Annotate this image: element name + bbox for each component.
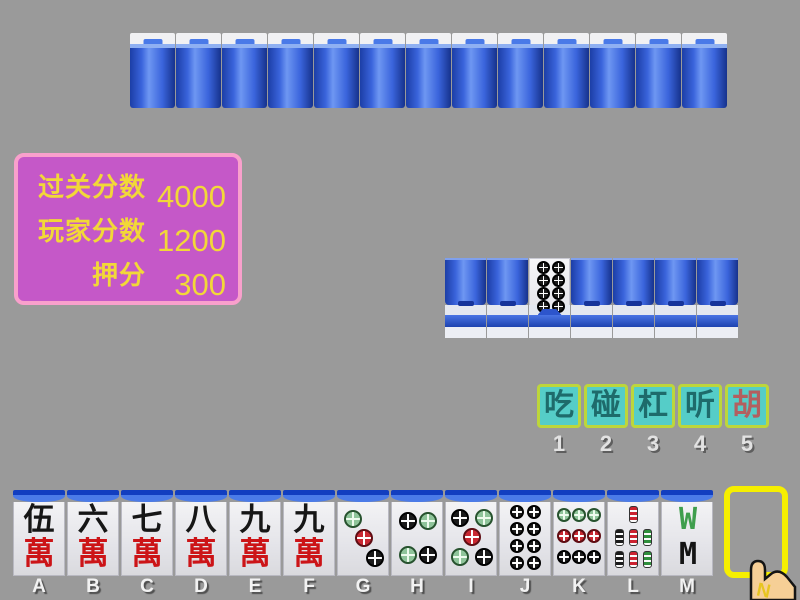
hand-cursor-icon: N bbox=[736, 558, 798, 600]
bamboo-stick bbox=[643, 551, 652, 568]
opponent-tile-back bbox=[498, 33, 543, 108]
opponent-tile-back bbox=[452, 33, 497, 108]
tile-face-dots-8 bbox=[529, 258, 570, 305]
tile-char-top: 九 bbox=[230, 503, 280, 537]
opponent-tile-back bbox=[222, 33, 267, 108]
tile-back bbox=[452, 48, 497, 108]
hand-tile-label: B bbox=[86, 576, 100, 598]
dot-pip bbox=[366, 549, 384, 567]
opponent-tile-back bbox=[406, 33, 451, 108]
dot-pip bbox=[475, 548, 493, 566]
dot-pip bbox=[587, 529, 601, 543]
score-row: 押分 300 bbox=[18, 255, 238, 299]
dot-pip bbox=[587, 508, 601, 522]
hand-slot-d: 八萬D bbox=[175, 490, 227, 598]
tile-char-top: 六 bbox=[68, 503, 118, 537]
tile-face-bamboo-8: WM bbox=[661, 502, 713, 576]
dot-pip bbox=[344, 510, 362, 528]
tile-back bbox=[268, 48, 313, 108]
tile-edge bbox=[613, 327, 654, 338]
tile-top-edge bbox=[268, 33, 313, 44]
tile-edge-blue bbox=[571, 315, 612, 327]
tile-face-wan-8: 八萬 bbox=[175, 502, 227, 576]
hand-tile-label: L bbox=[627, 576, 639, 598]
tile-top-edge bbox=[360, 33, 405, 44]
hand-tile-d[interactable]: 八萬 bbox=[175, 490, 227, 576]
opponent-tile-back bbox=[176, 33, 221, 108]
hand-tile-a[interactable]: 伍萬 bbox=[13, 490, 65, 576]
hand-slot-i: I bbox=[445, 490, 497, 598]
tile-char-top: 八 bbox=[176, 503, 226, 537]
meld-tile-back bbox=[571, 258, 612, 338]
player-score-label: 玩家分数 bbox=[18, 211, 146, 255]
tile-top-edge-light bbox=[121, 495, 173, 502]
hand-slot-b: 六萬B bbox=[67, 490, 119, 598]
dot-pip bbox=[572, 529, 586, 543]
score-panel: 过关分数 4000 玩家分数 1200 押分 300 bbox=[14, 153, 242, 305]
hand-tile-g[interactable] bbox=[337, 490, 389, 576]
tile-top-edge-light bbox=[445, 495, 497, 502]
player-hand: 伍萬A六萬B七萬C八萬D九萬E九萬FGHIJKLWMM bbox=[13, 490, 713, 598]
bamboo-stick bbox=[615, 529, 624, 546]
hand-tile-label: H bbox=[410, 576, 424, 598]
dot-pip bbox=[451, 548, 469, 566]
opponent-tile-back bbox=[544, 33, 589, 108]
dot-pip bbox=[419, 512, 437, 530]
hand-tile-e[interactable]: 九萬 bbox=[229, 490, 281, 576]
tile-edge bbox=[613, 305, 654, 315]
hand-slot-g: G bbox=[337, 490, 389, 598]
meld-tile-revealed bbox=[529, 258, 570, 338]
tile-edge-blue bbox=[655, 315, 696, 327]
meld-tile-back bbox=[655, 258, 696, 338]
tile-edge bbox=[445, 327, 486, 338]
dot-pip bbox=[537, 274, 550, 287]
hand-tile-label: C bbox=[140, 576, 154, 598]
tile-char-top: 九 bbox=[284, 503, 334, 537]
tile-back bbox=[222, 48, 267, 108]
hotkey-label: 2 bbox=[600, 431, 612, 457]
bamboo8-bottom-glyph: M bbox=[662, 538, 712, 572]
tile-char-bottom: 萬 bbox=[284, 537, 334, 571]
player-score-value: 1200 bbox=[146, 225, 238, 255]
hand-slot-c: 七萬C bbox=[121, 490, 173, 598]
bamboo-stick bbox=[615, 551, 624, 568]
tile-face-wan-9: 九萬 bbox=[229, 502, 281, 576]
action-button-4[interactable]: 听 bbox=[678, 384, 722, 428]
dot-pip bbox=[510, 539, 524, 553]
hand-tile-label: G bbox=[356, 576, 371, 598]
bet-score-value: 300 bbox=[146, 269, 238, 299]
tile-char-bottom: 萬 bbox=[14, 537, 64, 571]
tile-edge bbox=[655, 327, 696, 338]
dot-pip bbox=[557, 529, 571, 543]
game-stage: 过关分数 4000 玩家分数 1200 押分 300 吃1碰2杠3听4胡5 伍萬… bbox=[0, 0, 800, 600]
hand-slot-j: J bbox=[499, 490, 551, 598]
hand-slot-m: WMM bbox=[661, 490, 713, 598]
dot-pip bbox=[557, 508, 571, 522]
action-col: 杠3 bbox=[631, 384, 675, 457]
tile-face-dots-5 bbox=[445, 502, 497, 576]
hand-tile-h[interactable] bbox=[391, 490, 443, 576]
tile-top-edge bbox=[544, 33, 589, 44]
tile-edge-blue bbox=[529, 315, 570, 327]
meld-row bbox=[445, 258, 739, 338]
tile-edge-blue bbox=[697, 315, 738, 327]
action-button-2[interactable]: 碰 bbox=[584, 384, 628, 428]
tile-face-dots-3 bbox=[337, 502, 389, 576]
dot-pip bbox=[399, 512, 417, 530]
bamboo-stick bbox=[629, 551, 638, 568]
tile-top-edge bbox=[636, 33, 681, 44]
tile-edge-blue bbox=[487, 315, 528, 327]
opponent-hand bbox=[130, 33, 728, 108]
hand-tile-f[interactable]: 九萬 bbox=[283, 490, 335, 576]
dot-pip bbox=[419, 546, 437, 564]
tile-back bbox=[636, 48, 681, 108]
dot-pip bbox=[537, 287, 550, 300]
hand-slot-f: 九萬F bbox=[283, 490, 335, 598]
tile-char-top: 七 bbox=[122, 503, 172, 537]
tile-back bbox=[314, 48, 359, 108]
tile-back bbox=[487, 258, 528, 305]
tile-top-edge bbox=[498, 33, 543, 44]
tile-edge bbox=[571, 327, 612, 338]
tile-top-edge bbox=[130, 33, 175, 44]
tile-char-bottom: 萬 bbox=[230, 537, 280, 571]
tile-top-edge-light bbox=[283, 495, 335, 502]
hand-slot-e: 九萬E bbox=[229, 490, 281, 598]
hotkey-label: 5 bbox=[741, 431, 753, 457]
tile-top-edge-light bbox=[229, 495, 281, 502]
action-col: 听4 bbox=[678, 384, 722, 457]
tile-back bbox=[682, 48, 727, 108]
opponent-tile-back bbox=[130, 33, 175, 108]
dot-pip bbox=[572, 550, 586, 564]
hotkey-label: 1 bbox=[553, 431, 565, 457]
bamboo-stick bbox=[629, 506, 638, 523]
bamboo-stick bbox=[629, 529, 638, 546]
action-button-1[interactable]: 吃 bbox=[537, 384, 581, 428]
tile-top-edge-light bbox=[391, 495, 443, 502]
tile-face-dots-8 bbox=[499, 502, 551, 576]
tile-face-wan-9: 九萬 bbox=[283, 502, 335, 576]
opponent-tile-back bbox=[268, 33, 313, 108]
hand-tile-i[interactable] bbox=[445, 490, 497, 576]
dot-pip bbox=[552, 261, 565, 274]
bet-score-label: 押分 bbox=[18, 255, 146, 299]
opponent-tile-back bbox=[314, 33, 359, 108]
tile-face-wan-5: 伍萬 bbox=[13, 502, 65, 576]
dot-pip bbox=[451, 509, 469, 527]
tile-top-edge bbox=[590, 33, 635, 44]
tile-top-edge-light bbox=[175, 495, 227, 502]
dot-pip bbox=[355, 529, 373, 547]
dot-pip bbox=[399, 546, 417, 564]
dot-pip bbox=[557, 550, 571, 564]
action-bar: 吃1碰2杠3听4胡5 bbox=[537, 384, 769, 457]
tile-edge-blue bbox=[445, 315, 486, 327]
hand-tile-label: E bbox=[249, 576, 262, 598]
action-button-5[interactable]: 胡 bbox=[725, 384, 769, 428]
dot-pip bbox=[527, 539, 541, 553]
hand-tile-label: F bbox=[303, 576, 315, 598]
tile-edge bbox=[697, 305, 738, 315]
action-col: 吃1 bbox=[537, 384, 581, 457]
dot-pip bbox=[552, 287, 565, 300]
hand-slot-l: L bbox=[607, 490, 659, 598]
tile-face-dots-9 bbox=[553, 502, 605, 576]
tile-char-bottom: 萬 bbox=[68, 537, 118, 571]
hand-slot-h: H bbox=[391, 490, 443, 598]
tile-back bbox=[498, 48, 543, 108]
dot-pip bbox=[510, 522, 524, 536]
opponent-tile-back bbox=[636, 33, 681, 108]
tile-back bbox=[697, 258, 738, 305]
hand-slot-a: 伍萬A bbox=[13, 490, 65, 598]
action-col: 胡5 bbox=[725, 384, 769, 457]
dot-pip bbox=[510, 505, 524, 519]
dot-pip bbox=[552, 274, 565, 287]
dot-pip bbox=[475, 509, 493, 527]
opponent-tile-back bbox=[682, 33, 727, 108]
tile-top-edge-light bbox=[661, 495, 713, 502]
tile-char-bottom: 萬 bbox=[122, 537, 172, 571]
tile-edge bbox=[571, 305, 612, 315]
tile-edge bbox=[487, 327, 528, 338]
tile-edge-blue bbox=[613, 315, 654, 327]
dot-pip bbox=[587, 550, 601, 564]
bamboo-stick bbox=[643, 529, 652, 546]
hand-tile-j[interactable] bbox=[499, 490, 551, 576]
meld-tile-back bbox=[445, 258, 486, 338]
dot-pip bbox=[463, 528, 481, 546]
bamboo8-top-glyph: W bbox=[662, 503, 712, 537]
tile-back bbox=[571, 258, 612, 305]
dot-pip bbox=[537, 261, 550, 274]
meld-tile-back bbox=[697, 258, 738, 338]
tile-top-edge bbox=[176, 33, 221, 44]
hand-tile-label: D bbox=[194, 576, 208, 598]
dot-pip bbox=[572, 508, 586, 522]
tile-top-edge-light bbox=[67, 495, 119, 502]
hand-tile-b[interactable]: 六萬 bbox=[67, 490, 119, 576]
hand-tile-m[interactable]: WM bbox=[661, 490, 713, 576]
tile-char-bottom: 萬 bbox=[176, 537, 226, 571]
tile-top-edge-light bbox=[337, 495, 389, 502]
tile-back bbox=[590, 48, 635, 108]
dot-pip bbox=[527, 522, 541, 536]
dot-pip bbox=[527, 505, 541, 519]
tile-top-edge bbox=[682, 33, 727, 44]
meld-tile-back bbox=[613, 258, 654, 338]
action-col: 碰2 bbox=[584, 384, 628, 457]
tile-top-edge bbox=[314, 33, 359, 44]
tile-edge bbox=[529, 327, 570, 338]
hand-tile-label: A bbox=[32, 576, 46, 598]
tile-top-edge-light bbox=[13, 495, 65, 502]
hand-tile-k[interactable] bbox=[553, 490, 605, 576]
tile-back bbox=[655, 258, 696, 305]
tile-top-edge-light bbox=[499, 495, 551, 502]
score-row: 玩家分数 1200 bbox=[18, 211, 238, 255]
hand-tile-l[interactable] bbox=[607, 490, 659, 576]
tile-back bbox=[445, 258, 486, 305]
opponent-tile-back bbox=[590, 33, 635, 108]
hand-tile-label: K bbox=[572, 576, 586, 598]
tile-edge bbox=[445, 305, 486, 315]
hotkey-label: 4 bbox=[694, 431, 706, 457]
dot-pip bbox=[527, 556, 541, 570]
meld-tile-back bbox=[487, 258, 528, 338]
hand-tile-label: J bbox=[520, 576, 531, 598]
tile-top-edge-light bbox=[607, 495, 659, 502]
tile-back bbox=[613, 258, 654, 305]
tile-back bbox=[544, 48, 589, 108]
tile-face-wan-7: 七萬 bbox=[121, 502, 173, 576]
tile-edge bbox=[655, 305, 696, 315]
tile-back bbox=[360, 48, 405, 108]
tile-top-edge bbox=[406, 33, 451, 44]
pass-score-value: 4000 bbox=[146, 181, 238, 211]
tile-char-top: 伍 bbox=[14, 503, 64, 537]
hand-tile-label: I bbox=[468, 576, 473, 598]
tile-back bbox=[406, 48, 451, 108]
tile-face-dots-4 bbox=[391, 502, 443, 576]
tile-face-bamboo-7 bbox=[607, 502, 659, 576]
opponent-tile-back bbox=[360, 33, 405, 108]
tile-top-edge bbox=[452, 33, 497, 44]
tile-edge bbox=[697, 327, 738, 338]
dot-pip bbox=[510, 556, 524, 570]
tile-face-wan-6: 六萬 bbox=[67, 502, 119, 576]
tile-back bbox=[130, 48, 175, 108]
tile-top-edge-light bbox=[553, 495, 605, 502]
hand-tile-c[interactable]: 七萬 bbox=[121, 490, 173, 576]
hand-tile-label: M bbox=[679, 576, 695, 598]
score-row: 过关分数 4000 bbox=[18, 167, 238, 211]
action-button-3[interactable]: 杠 bbox=[631, 384, 675, 428]
pass-score-label: 过关分数 bbox=[18, 167, 146, 211]
tile-edge bbox=[487, 305, 528, 315]
tile-back bbox=[176, 48, 221, 108]
tile-top-edge bbox=[222, 33, 267, 44]
hotkey-label: 3 bbox=[647, 431, 659, 457]
hand-slot-k: K bbox=[553, 490, 605, 598]
